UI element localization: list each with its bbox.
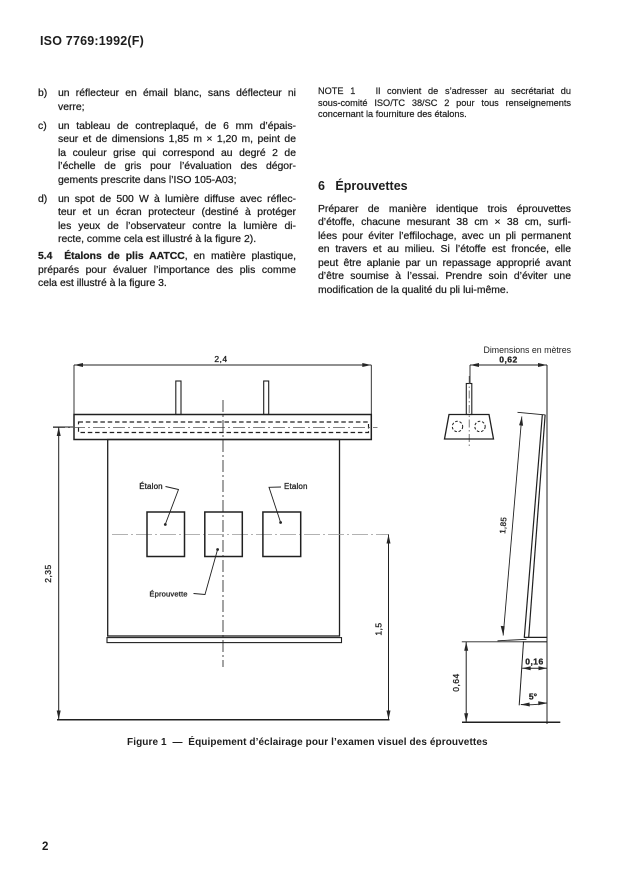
svg-text:1,85: 1,85	[498, 516, 508, 534]
svg-text:0,64: 0,64	[451, 673, 461, 692]
svg-text:2,35: 2,35	[43, 564, 53, 583]
svg-text:0,16: 0,16	[525, 657, 544, 667]
svg-text:Étalon: Étalon	[139, 482, 163, 491]
svg-text:2,4: 2,4	[214, 354, 227, 364]
svg-text:5°: 5°	[529, 692, 538, 702]
svg-text:Éprouvette: Éprouvette	[149, 590, 187, 599]
svg-text:0,62: 0,62	[499, 355, 518, 365]
svg-text:Etalon: Etalon	[284, 482, 308, 491]
svg-text:1,5: 1,5	[374, 622, 384, 635]
